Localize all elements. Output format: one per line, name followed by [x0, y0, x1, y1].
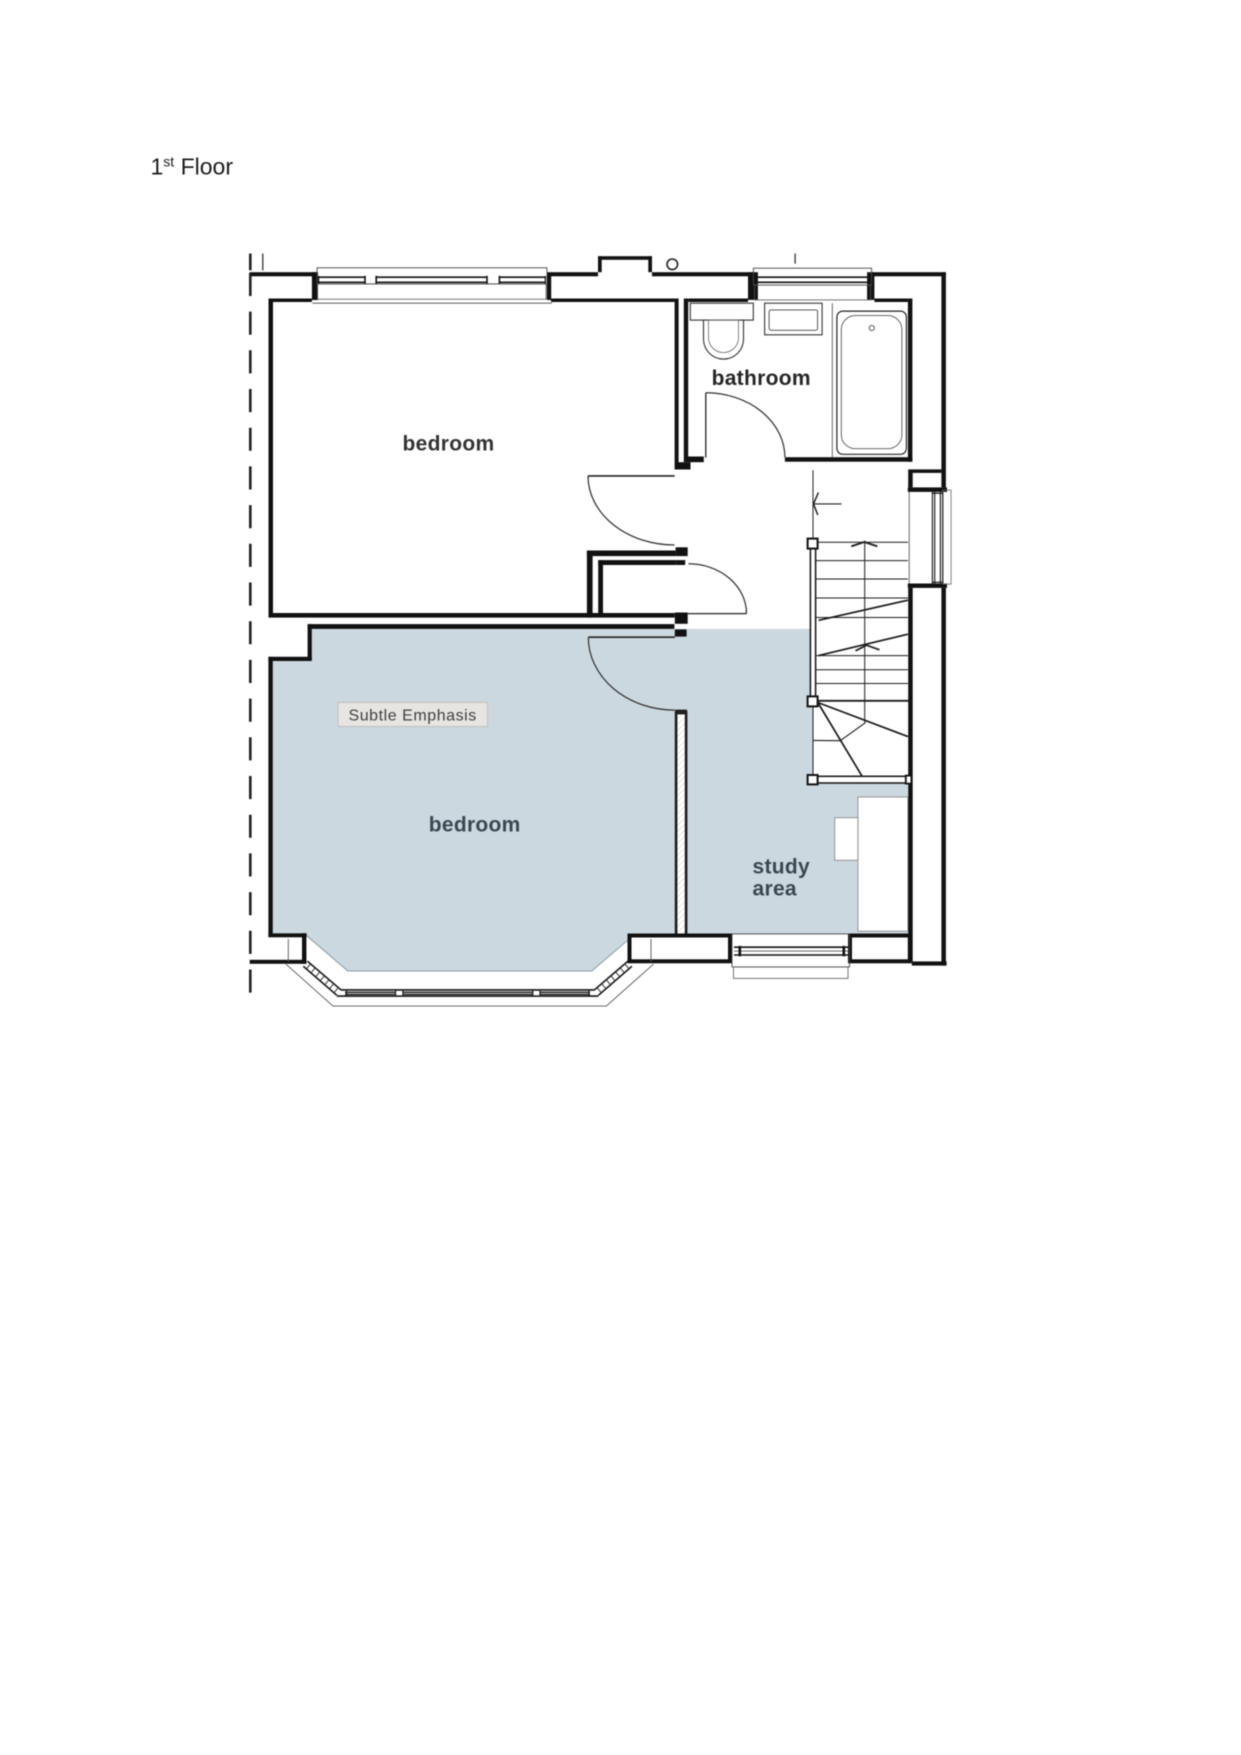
svg-text:Subtle Emphasis: Subtle Emphasis — [349, 707, 477, 724]
svg-text:study: study — [753, 856, 811, 879]
svg-text:bedroom: bedroom — [403, 433, 495, 456]
svg-text:bedroom: bedroom — [429, 814, 521, 837]
svg-text:bathroom: bathroom — [712, 367, 811, 390]
svg-text:area: area — [753, 878, 797, 901]
svg-text:1st Floor: 1st Floor — [151, 154, 234, 180]
